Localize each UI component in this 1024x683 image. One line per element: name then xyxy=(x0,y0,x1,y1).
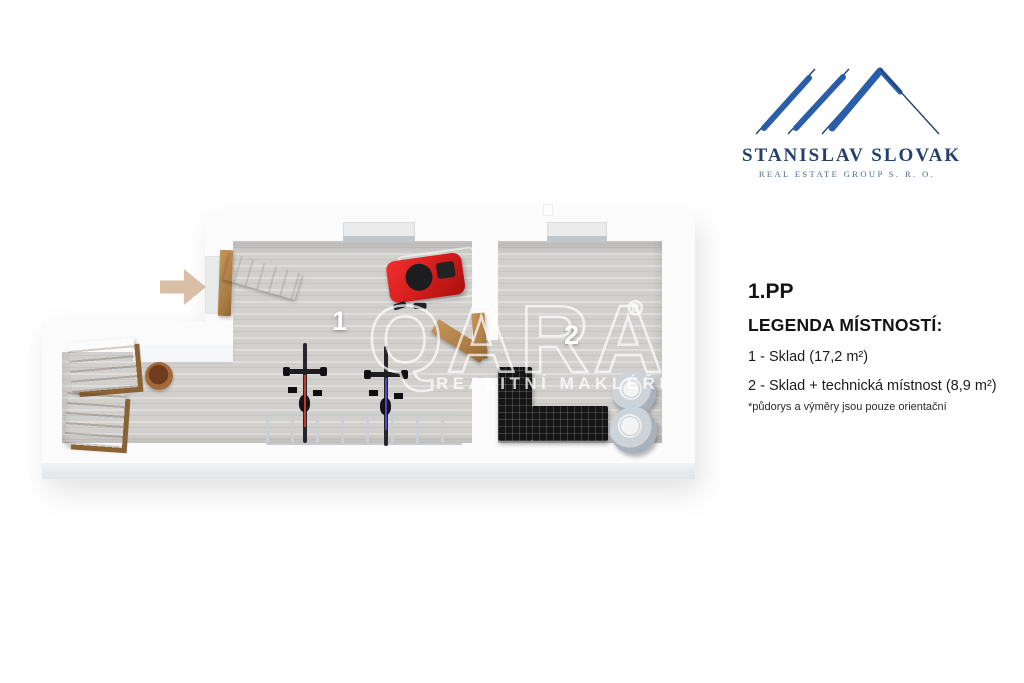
agency-branding: STANISLAV SLOVAK REAL ESTATE GROUP S. R.… xyxy=(742,62,952,179)
shelving-unit-black xyxy=(532,406,608,441)
legend-disclaimer: *půdorys a výměry jsou pouze orientační xyxy=(748,401,1013,413)
window-recess-room1 xyxy=(343,222,415,242)
agency-subtitle: REAL ESTATE GROUP S. R. O. xyxy=(742,169,952,179)
wooden-crate xyxy=(68,337,138,393)
roof-lines-icon xyxy=(752,62,942,136)
window-recess-room2 xyxy=(547,222,607,242)
wall-front-face xyxy=(42,463,695,479)
watermark-tagline: REALITNÍ MAKLÉŘI xyxy=(436,374,669,394)
wall-step xyxy=(133,345,233,362)
agency-name: STANISLAV SLOVAK xyxy=(742,145,952,167)
bicycle-red xyxy=(283,343,327,445)
floor-label: 1.PP xyxy=(748,280,1013,304)
room-number-1: 1 xyxy=(332,306,347,337)
plant-pot xyxy=(145,362,173,390)
registered-mark-icon: ® xyxy=(628,298,643,321)
boiler-tank xyxy=(610,407,657,454)
lawnmower-engine xyxy=(436,261,456,279)
legend-item-room1: 1 - Sklad (17,2 m²) xyxy=(748,349,1013,365)
wooden-crate xyxy=(64,388,126,448)
legend-title: LEGENDA MÍSTNOSTÍ: xyxy=(748,315,1013,336)
wall-stub xyxy=(543,204,553,216)
floorplan-page: 1 2 QARA ® REALITNÍ MAKLÉŘI STANISLAV SL… xyxy=(0,0,1024,683)
legend-item-room2: 2 - Sklad + technická místnost (8,9 m²) xyxy=(748,378,1013,394)
info-panel: 1.PP LEGENDA MÍSTNOSTÍ: 1 - Sklad (17,2 … xyxy=(748,280,1013,413)
